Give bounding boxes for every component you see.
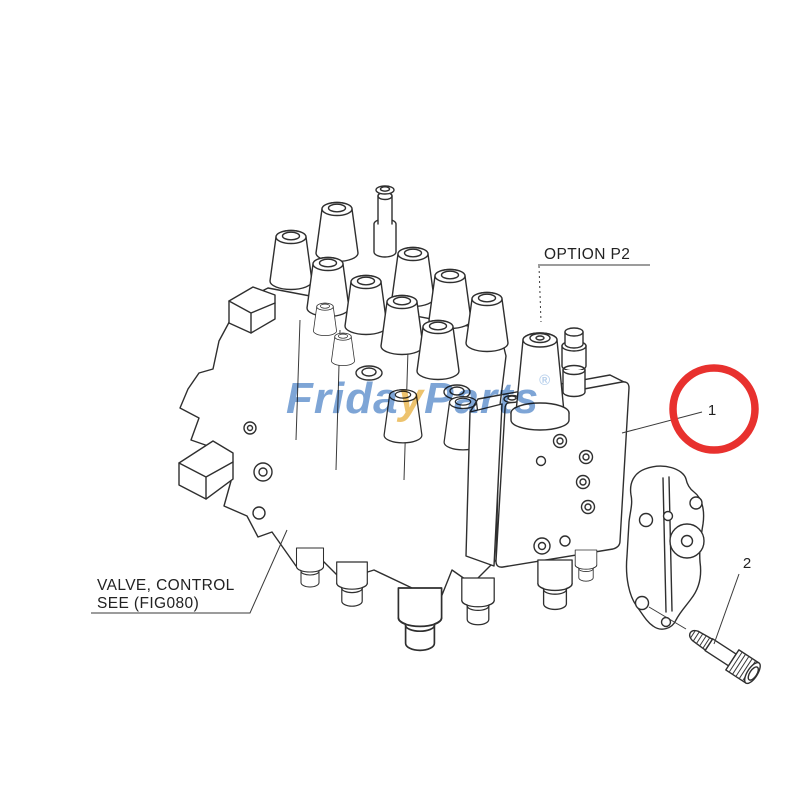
mounting-plate xyxy=(626,466,704,629)
option-p2-drop-line xyxy=(539,266,541,322)
option-p2-valve xyxy=(511,333,569,430)
parts-diagram-canvas: OPTION P2 VALVE, CONTROL SEE (FIG080) 1 … xyxy=(0,0,800,800)
callout-2-leader-line xyxy=(714,574,739,644)
top-stepped-fitting xyxy=(374,186,396,257)
valve-control-label-line1: VALVE, CONTROL xyxy=(97,577,235,594)
callout-1-number: 1 xyxy=(708,402,716,419)
mounting-bolt xyxy=(684,623,763,686)
valve-control-label-line2: SEE (FIG080) xyxy=(97,595,199,612)
callout-2-number: 2 xyxy=(743,555,751,572)
stacked-nut-fitting xyxy=(562,328,586,397)
callout-1-leader-line xyxy=(622,412,702,433)
valve-assembly-line-art: OPTION P2 VALVE, CONTROL SEE (FIG080) 1 … xyxy=(0,0,800,800)
option-p2-label: OPTION P2 xyxy=(544,246,630,263)
